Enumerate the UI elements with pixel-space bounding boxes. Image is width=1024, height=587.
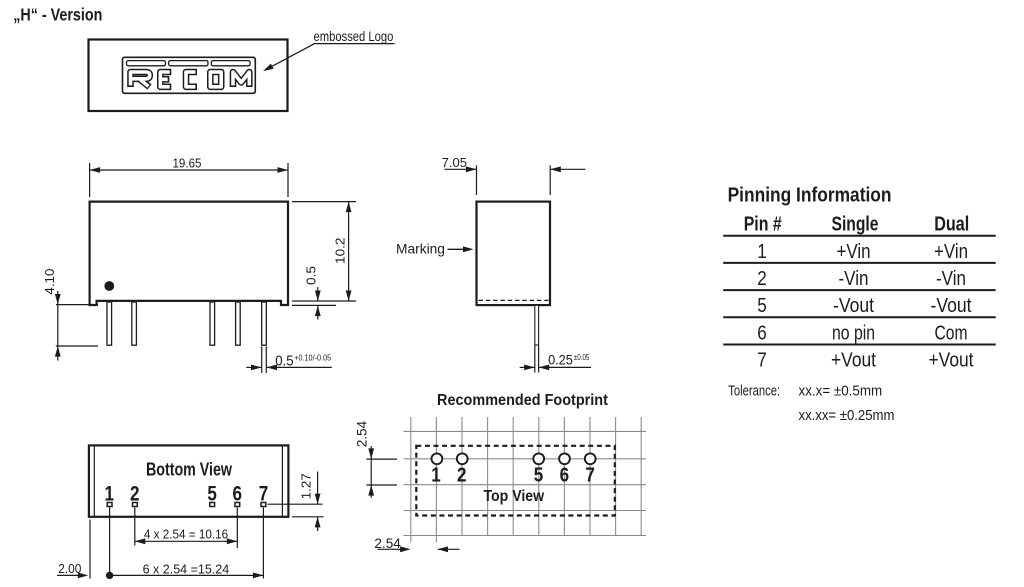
svg-text:6: 6 xyxy=(757,321,767,344)
svg-text:6: 6 xyxy=(560,463,570,486)
svg-text:4 x 2.54 = 10.16: 4 x 2.54 = 10.16 xyxy=(144,527,228,542)
svg-text:7.05: 7.05 xyxy=(442,155,467,170)
svg-text:Pinning Information: Pinning Information xyxy=(728,183,892,205)
svg-text:7: 7 xyxy=(757,348,767,371)
svg-text:7: 7 xyxy=(585,463,595,486)
svg-text:10.2: 10.2 xyxy=(333,238,348,264)
svg-text:Single: Single xyxy=(832,211,879,235)
svg-text:-Vout: -Vout xyxy=(931,294,973,316)
svg-text:1: 1 xyxy=(431,463,441,486)
svg-text:2: 2 xyxy=(757,267,767,290)
svg-text:embossed Logo: embossed Logo xyxy=(314,29,394,44)
svg-text:Com: Com xyxy=(935,322,968,344)
svg-text:xx.xx= ±0.25mm: xx.xx= ±0.25mm xyxy=(799,406,895,423)
svg-text:0.5: 0.5 xyxy=(304,266,319,285)
svg-text:Bottom View: Bottom View xyxy=(146,460,232,480)
svg-text:5: 5 xyxy=(534,463,544,486)
svg-text:±0.05: ±0.05 xyxy=(574,352,589,362)
svg-text:1: 1 xyxy=(757,240,767,263)
svg-text:5: 5 xyxy=(757,294,767,317)
svg-text:Tolerance:: Tolerance: xyxy=(728,382,780,399)
svg-text:Pin #: Pin # xyxy=(744,211,782,234)
svg-text:2.54: 2.54 xyxy=(354,420,369,447)
svg-text:0.25: 0.25 xyxy=(548,352,573,367)
svg-text:1.27: 1.27 xyxy=(299,473,314,499)
svg-text:-Vout: -Vout xyxy=(833,294,875,316)
svg-text:+Vin: +Vin xyxy=(837,239,871,262)
svg-text:-Vin: -Vin xyxy=(839,267,869,290)
svg-text:0.5: 0.5 xyxy=(275,352,294,369)
svg-text:4.10: 4.10 xyxy=(42,269,57,295)
svg-text:no pin: no pin xyxy=(832,322,875,344)
svg-text:Recommended Footprint: Recommended Footprint xyxy=(437,391,608,409)
svg-text:Top View: Top View xyxy=(483,487,544,505)
svg-text:Marking: Marking xyxy=(396,240,445,256)
svg-text:6 x 2.54 =15.24: 6 x 2.54 =15.24 xyxy=(143,561,230,576)
svg-text:+Vout: +Vout xyxy=(831,348,877,370)
svg-text:+0.10/-0.05: +0.10/-0.05 xyxy=(294,353,332,363)
svg-text:xx.x= ±0.5mm: xx.x= ±0.5mm xyxy=(799,382,883,399)
svg-text:Dual: Dual xyxy=(934,212,969,235)
svg-text:2.54: 2.54 xyxy=(374,536,401,551)
svg-text:2.00: 2.00 xyxy=(58,562,81,577)
svg-text:2: 2 xyxy=(457,463,467,486)
svg-text:19.65: 19.65 xyxy=(173,156,202,171)
svg-text:+Vout: +Vout xyxy=(929,348,975,370)
svg-text:+Vin: +Vin xyxy=(934,239,968,262)
svg-text:„H“ - Version: „H“ - Version xyxy=(13,6,102,25)
svg-text:-Vin: -Vin xyxy=(936,267,966,290)
